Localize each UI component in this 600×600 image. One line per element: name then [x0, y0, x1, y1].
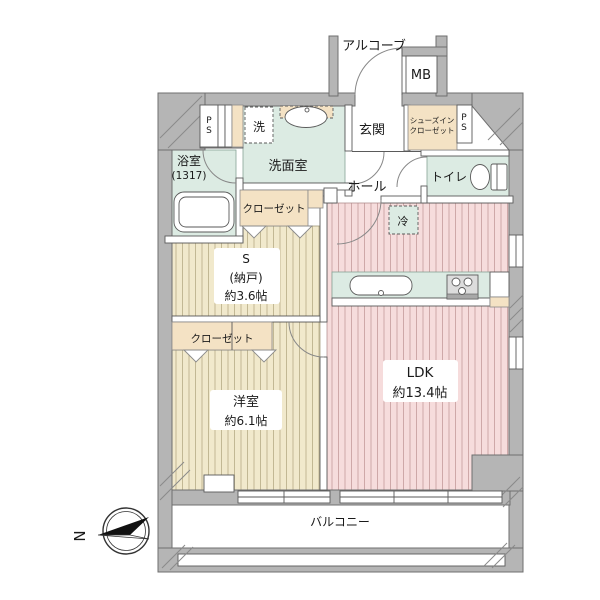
- corner-block-top-right: [472, 93, 523, 150]
- wall-bathroom-bottom: [165, 236, 243, 243]
- toilet-tank: [491, 164, 507, 190]
- storage-closet-small-box: [308, 190, 323, 208]
- toilet-bowl-icon: [471, 165, 490, 190]
- duct-strip-2: [225, 105, 232, 147]
- pipe-shaft-right-s: S: [461, 123, 467, 133]
- hall-corner-box: [324, 188, 337, 203]
- duct-strip-3: [232, 105, 243, 147]
- alcove-stub-right: [436, 36, 447, 96]
- stove-burner: [459, 288, 466, 295]
- ldk-size: 約13.4帖: [393, 386, 448, 401]
- washer-label: 洗: [253, 120, 265, 134]
- toilet-door-arc: [397, 157, 427, 187]
- floor-plan: アルコーブ MB 玄関 シューズイン クローゼット P S P S 洗 洗面室 …: [0, 0, 600, 600]
- bedroom-closet-label: クローゼット: [191, 333, 254, 345]
- stove-burner: [464, 278, 472, 286]
- wall-ldk-west-upper: [320, 196, 327, 322]
- bathroom-label: 浴室: [177, 153, 201, 168]
- kitchen-side-cabinet: [490, 297, 509, 307]
- entrance-door-arc: [355, 48, 402, 95]
- wall-toilet-left: [421, 186, 427, 203]
- balcony-label: バルコニー: [310, 515, 370, 529]
- stove-burner: [452, 278, 460, 286]
- kitchen-sink-drain: [379, 291, 384, 296]
- storage-room-size: 約3.6帖: [224, 288, 267, 303]
- bedroom-size: 約6.1帖: [224, 413, 267, 428]
- ldk-corner-column: [472, 455, 523, 491]
- washroom-label: 洗面室: [268, 158, 307, 174]
- pipe-shaft-left-p: P: [206, 116, 212, 126]
- wall-right: [509, 93, 523, 572]
- wall-ldk-west-lower: [320, 357, 327, 490]
- wall-hall-ldk-right: [381, 196, 513, 203]
- ldk-floor: [327, 203, 509, 490]
- pipe-shaft-left-s: S: [206, 126, 212, 136]
- meter-box-label: MB: [411, 68, 431, 83]
- alcove-stub-left: [329, 36, 338, 96]
- alcove-label: アルコーブ: [342, 38, 406, 54]
- corner-block-top-left: [158, 93, 205, 150]
- wall-storage-bedroom: [172, 316, 320, 322]
- bathroom-size-label: (1317): [172, 170, 207, 182]
- shoes-in-closet-label-2: クローゼット: [410, 125, 455, 135]
- shoes-in-closet-label-1: シューズイン: [410, 115, 455, 125]
- compass-north-label: N: [71, 530, 89, 541]
- compass-icon: N: [71, 508, 149, 554]
- balcony-railing: [178, 554, 505, 566]
- entrance-label: 玄関: [359, 123, 385, 138]
- bedroom-bay-box: [204, 475, 234, 492]
- pipe-shaft-right-p: P: [461, 113, 467, 123]
- bedroom-name: 洋室: [233, 394, 259, 410]
- floor-plan-canvas: アルコーブ MB 玄関 シューズイン クローゼット P S P S 洗 洗面室 …: [0, 0, 600, 600]
- storage-room-sub: (納戸): [229, 271, 262, 285]
- refrigerator-label: 冷: [398, 215, 409, 228]
- wall-toilet-top: [421, 150, 509, 156]
- meter-box-top-wall: [402, 47, 447, 56]
- storage-room-name: S: [242, 252, 250, 266]
- kitchen-side-box: [490, 272, 509, 297]
- storage-closet-label: クローゼット: [243, 203, 306, 215]
- compass-needle-south: [98, 535, 149, 539]
- wall-washroom-entrance: [345, 105, 352, 151]
- duct-strip-1: [218, 105, 225, 147]
- toilet-label: トイレ: [431, 170, 467, 184]
- ldk-name: LDK: [407, 365, 435, 381]
- wall-left: [158, 93, 172, 572]
- hall-label: ホール: [347, 180, 386, 195]
- vanity-faucet: [305, 108, 309, 112]
